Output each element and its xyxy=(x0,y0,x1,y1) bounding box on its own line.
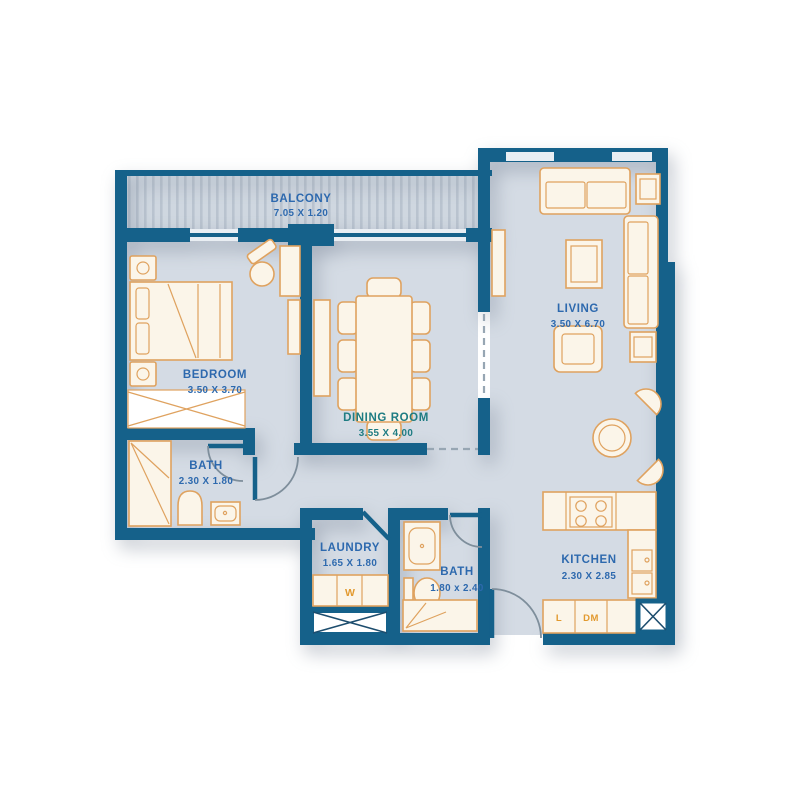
bedroom-bottom-wall-seg xyxy=(294,443,312,455)
dining-chair xyxy=(410,378,430,410)
laundry-fixtures xyxy=(313,575,388,633)
nightstand xyxy=(130,362,156,386)
bath2-label: BATH xyxy=(440,566,474,578)
dining-label: DINING ROOM xyxy=(343,412,429,424)
living-left-wall-top xyxy=(478,148,490,238)
bath1-top-wall xyxy=(115,428,255,440)
desk-chair xyxy=(250,262,274,286)
bedroom-dining-divider xyxy=(300,238,312,443)
balcony-dims: 7.05 X 1.20 xyxy=(274,208,329,219)
dining-living-divider-top xyxy=(478,238,490,312)
bath1-label: BATH xyxy=(189,460,223,472)
kitchen-label: KITCHEN xyxy=(561,554,616,566)
toilet xyxy=(178,491,202,525)
balcony-wall-seg-1 xyxy=(115,228,190,242)
laundry-bath-divider xyxy=(388,508,400,645)
balcony-label: BALCONY xyxy=(270,193,331,205)
coffee-table-top xyxy=(571,246,597,282)
living-label: LIVING xyxy=(557,303,599,315)
dining-chair xyxy=(367,278,401,298)
pillow xyxy=(136,288,149,319)
balcony-wall-seg-2 xyxy=(238,228,290,242)
bath1-dims: 2.30 X 1.80 xyxy=(179,476,234,487)
living-dims: 3.50 X 6.70 xyxy=(551,319,606,330)
laundry-label: LAUNDRY xyxy=(320,542,380,554)
laundry-top-wall xyxy=(312,508,363,520)
washer-label: W xyxy=(345,587,355,599)
sofa-cushion xyxy=(546,182,585,208)
bath1-bottom-wall xyxy=(115,528,315,540)
right-wall-step xyxy=(668,262,675,645)
tv-console xyxy=(492,230,505,296)
bath2-dims: 1.80 x 2.40 xyxy=(430,583,484,594)
dining-chair xyxy=(338,302,358,334)
nightstand xyxy=(130,256,156,280)
dining-window-glass xyxy=(334,233,466,237)
sofa-cushion xyxy=(628,276,648,324)
pillow xyxy=(136,323,149,354)
bedroom-dims: 3.50 X 3.70 xyxy=(188,385,243,396)
bath2-right-wall xyxy=(478,508,490,645)
corridor-floor xyxy=(243,455,490,515)
left-wall xyxy=(115,170,127,540)
side-table-top xyxy=(640,179,656,199)
dining-living-divider-bottom xyxy=(478,398,490,455)
sink-basin xyxy=(215,506,236,521)
floor-plan-page: BALCONY 7.05 X 1.20 BEDROOM 3.50 X 3.70 … xyxy=(0,0,800,800)
living-window-2-glass xyxy=(612,148,652,152)
sofa-cushion xyxy=(587,182,626,208)
sofa-cushion xyxy=(628,222,648,274)
dining-chair xyxy=(338,378,358,410)
dining-dims: 3.55 X 4.00 xyxy=(359,428,414,439)
dining-table xyxy=(356,296,412,422)
balcony-rail xyxy=(115,170,492,176)
dining-chair xyxy=(410,340,430,372)
kitchen-unit-1-label: L xyxy=(556,613,562,624)
sideboard xyxy=(314,300,330,396)
bedroom-window-glass xyxy=(190,233,238,237)
laundry-dims: 1.65 X 1.80 xyxy=(323,558,378,569)
dresser xyxy=(288,300,300,354)
laundry-left-wall xyxy=(300,508,312,645)
kitchen-dims: 2.30 X 2.85 xyxy=(562,571,617,582)
side-table-top xyxy=(634,337,652,357)
kitchen-bottom-wall xyxy=(543,633,668,645)
sink-basin xyxy=(409,528,435,564)
living-window-1-glass xyxy=(506,148,554,152)
dining-chair xyxy=(410,302,430,334)
armchair-seat xyxy=(562,334,594,364)
bedroom-label: BEDROOM xyxy=(183,369,247,381)
dining-bottom-wall xyxy=(306,443,427,455)
floor-plan: BALCONY 7.05 X 1.20 BEDROOM 3.50 X 3.70 … xyxy=(0,0,800,800)
bathtub xyxy=(403,600,477,631)
desk xyxy=(280,246,300,296)
kitchen-unit-2-label: DM xyxy=(583,613,599,624)
dining-chair xyxy=(338,340,358,372)
